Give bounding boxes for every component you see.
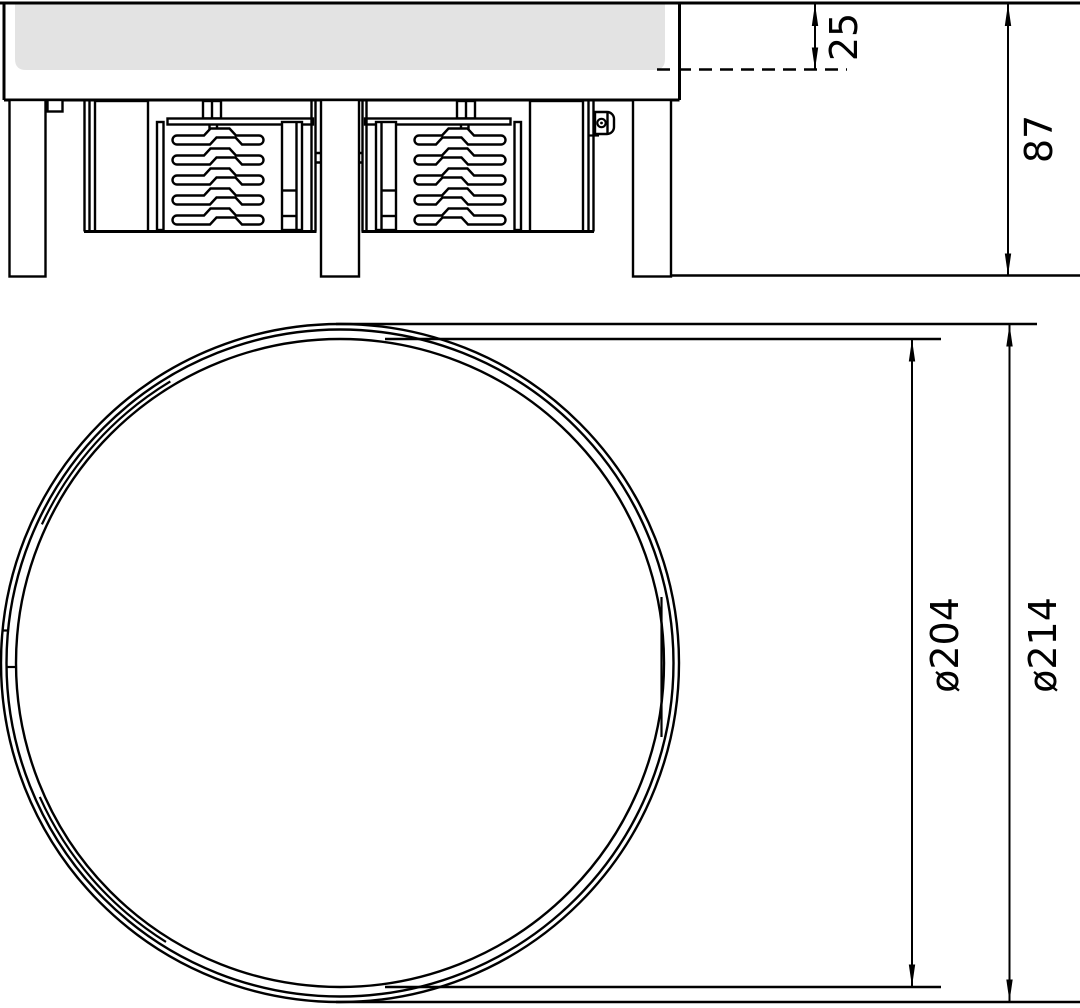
arrowhead-up-icon <box>1006 325 1012 347</box>
cooling-fin <box>173 149 264 165</box>
dimension-inner-diameter: ø204 <box>909 340 967 987</box>
dimension-label-214: ø214 <box>1021 597 1065 693</box>
arrowhead-up-icon <box>909 340 915 362</box>
mounting-stub <box>48 100 63 112</box>
arrowhead-up-icon <box>812 4 818 26</box>
leg-right <box>633 100 671 277</box>
cooling-fin <box>173 189 264 205</box>
heatsink-assembly-left <box>84 101 322 232</box>
fin-box-channel <box>282 122 302 230</box>
technical-drawing-canvas: 25 87 ø204 <box>0 0 1080 1008</box>
dimension-label-25: 25 <box>822 13 866 61</box>
arrowhead-down-icon <box>1006 980 1012 1002</box>
cooling-fin <box>173 129 264 145</box>
dimension-label-87: 87 <box>1017 115 1061 163</box>
technical-drawing-page: 25 87 ø204 <box>0 0 1080 1008</box>
cooling-fin <box>173 209 264 225</box>
fin-box-side-bar <box>157 122 164 230</box>
arrowhead-down-icon <box>812 48 818 70</box>
leg-center <box>321 100 359 277</box>
hanger-plate <box>95 101 148 232</box>
screw-center-dot <box>600 122 603 125</box>
side-view: 25 87 <box>0 3 1080 277</box>
arrowhead-down-icon <box>1005 254 1011 276</box>
heatsink-assembly-right <box>356 101 594 232</box>
outer-ring-circle <box>1 324 679 1002</box>
middle-ring-circle <box>7 330 674 997</box>
ring-seam-arc <box>11 334 669 992</box>
arrowhead-down-icon <box>909 965 915 987</box>
dimension-outer-diameter: ø214 <box>1006 325 1065 1002</box>
arrowhead-up-icon <box>1005 4 1011 26</box>
dimension-overall-height: 87 <box>1005 4 1061 276</box>
top-view: ø204 ø214 <box>1 324 1080 1002</box>
cooling-fin <box>173 169 264 185</box>
dimension-recess-depth: 25 <box>812 4 866 70</box>
recessed-panel-fill <box>15 4 665 70</box>
ring-seam-arc <box>11 334 669 992</box>
dimension-label-204: ø204 <box>923 597 967 693</box>
inner-ring-circle <box>16 339 664 987</box>
leg-left <box>10 100 46 277</box>
